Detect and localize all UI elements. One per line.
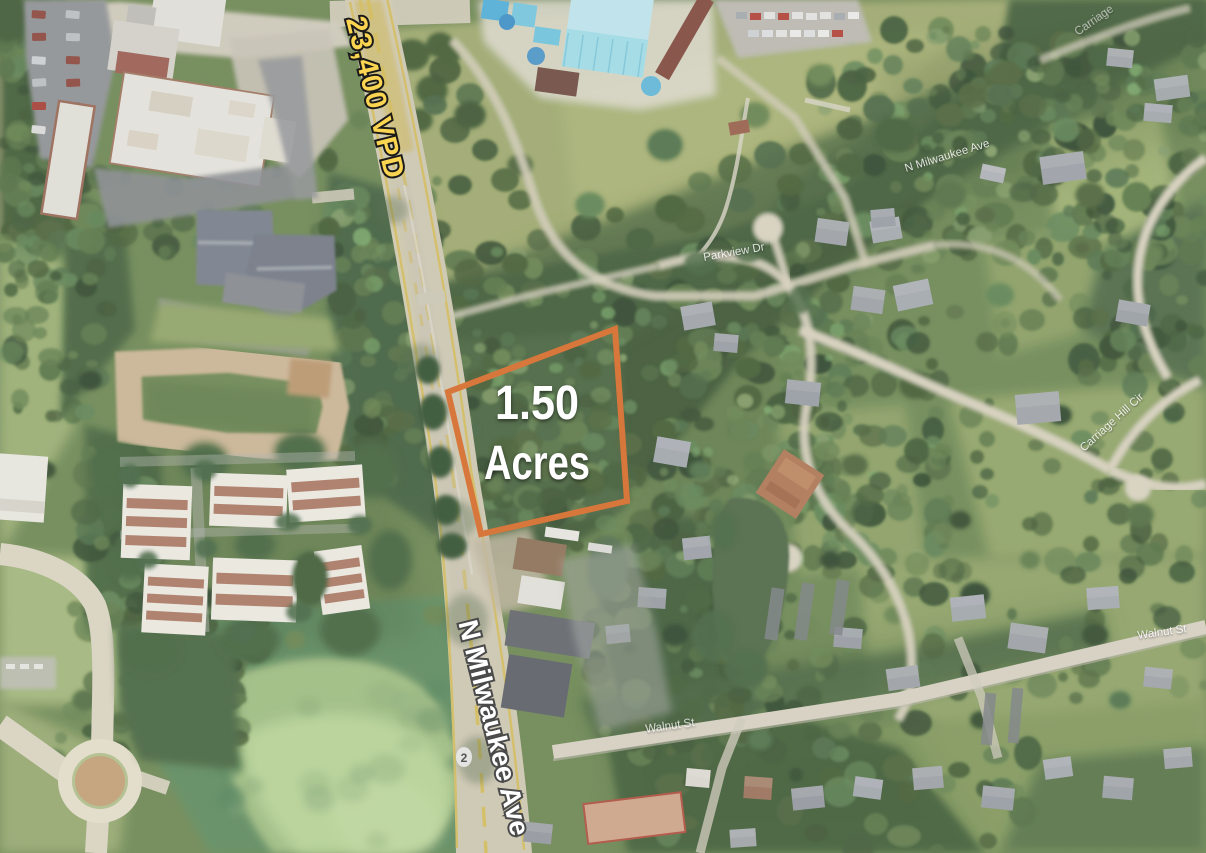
svg-text:2: 2 — [461, 751, 468, 765]
svg-text:1.50: 1.50 — [495, 377, 579, 430]
svg-text:Acres: Acres — [484, 437, 590, 490]
